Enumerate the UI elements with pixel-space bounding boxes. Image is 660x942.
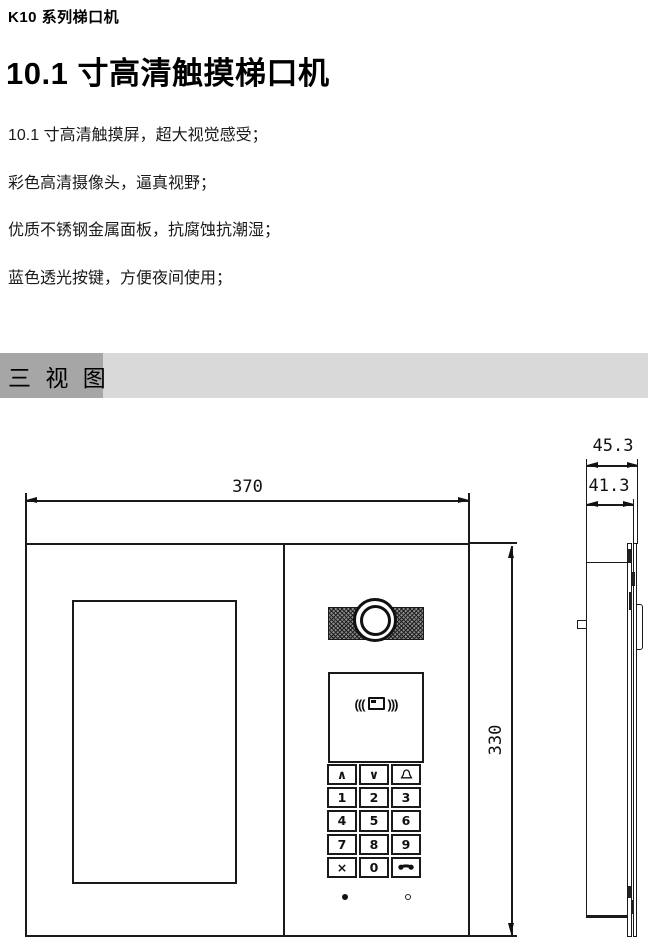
key-9: 9 (391, 834, 421, 855)
key-2: 2 (359, 787, 389, 808)
feature-line-2: 彩色高清摄像头，逼真视野； (8, 169, 216, 193)
key-5: 5 (359, 810, 389, 831)
card-reader-panel (328, 672, 424, 763)
card-icon (368, 697, 385, 710)
side-view-clip-5 (631, 900, 634, 914)
dim-width-arrow-right (458, 497, 469, 503)
bell-icon (400, 769, 413, 781)
key-4: 4 (327, 810, 357, 831)
dim-width-line (25, 500, 470, 502)
key-3: 3 (391, 787, 421, 808)
section-header-bar: 三 视 图 (0, 353, 648, 398)
dim-depth-front-ext-right (633, 499, 634, 544)
dim-depth-ext-right (637, 459, 638, 544)
side-view-body (586, 562, 628, 918)
camera-lens-icon (360, 605, 391, 636)
dim-height-label: 330 (486, 712, 506, 768)
phone-handset-icon (398, 862, 414, 872)
series-heading: K10 系列梯口机 (8, 6, 119, 27)
feature-line-1: 10.1 寸高清触摸屏，超大视觉感受； (8, 121, 268, 145)
dim-height-line (511, 546, 513, 935)
side-view-clip-3 (629, 592, 632, 610)
card-wave-left: ((( (355, 697, 365, 712)
key-bell (391, 764, 421, 785)
key-1: 1 (327, 787, 357, 808)
side-view-clip-4 (628, 886, 631, 898)
side-view-clip-2 (632, 572, 635, 586)
page-title: 10.1 寸高清触摸梯口机 (6, 48, 329, 93)
side-view-face-plate (633, 543, 637, 937)
key-7: 7 (327, 834, 357, 855)
feature-line-3: 优质不锈钢金属面板，抗腐蚀抗潮湿； (8, 216, 280, 240)
dim-depth-total-label: 45.3 (585, 436, 641, 456)
dim-height-ext-bottom (470, 935, 517, 937)
dim-depth-total-arrow-left (587, 462, 598, 468)
keypad: ∧ ∨ 1 2 3 4 5 6 7 8 9 × 0 (327, 764, 421, 878)
dim-width-label: 370 (205, 477, 290, 497)
dim-height-ext-top (470, 542, 517, 544)
card-wave-right: ))) (388, 697, 398, 712)
card-chip (371, 700, 376, 703)
dim-width-arrow-left (26, 497, 37, 503)
side-view-hook (577, 620, 587, 629)
screw-dot-right (405, 894, 411, 900)
key-up: ∧ (327, 764, 357, 785)
dim-depth-front-arrow-left (587, 501, 598, 507)
key-8: 8 (359, 834, 389, 855)
feature-line-4: 蓝色透光按键，方便夜间使用； (8, 264, 232, 288)
dim-depth-ext-left (586, 459, 587, 563)
section-header-label: 三 视 图 (0, 359, 110, 393)
key-cancel: × (327, 857, 357, 878)
key-6: 6 (391, 810, 421, 831)
side-view-clip-1 (628, 549, 631, 563)
document-page: K10 系列梯口机 10.1 寸高清触摸梯口机 10.1 寸高清触摸屏，超大视觉… (0, 0, 660, 942)
screw-dot-left (342, 894, 348, 900)
front-panel-divider (283, 543, 285, 937)
card-reader-icon: ((())) (328, 697, 424, 712)
section-header-highlight: 三 视 图 (0, 353, 103, 398)
side-view-camera-bulge (636, 604, 643, 650)
key-0: 0 (359, 857, 389, 878)
key-call (391, 857, 421, 878)
dim-depth-front-label: 41.3 (583, 476, 635, 496)
dim-height-arrow-top (508, 547, 514, 558)
key-down: ∨ (359, 764, 389, 785)
touch-screen (72, 600, 237, 884)
dim-height-arrow-bottom (508, 923, 514, 934)
